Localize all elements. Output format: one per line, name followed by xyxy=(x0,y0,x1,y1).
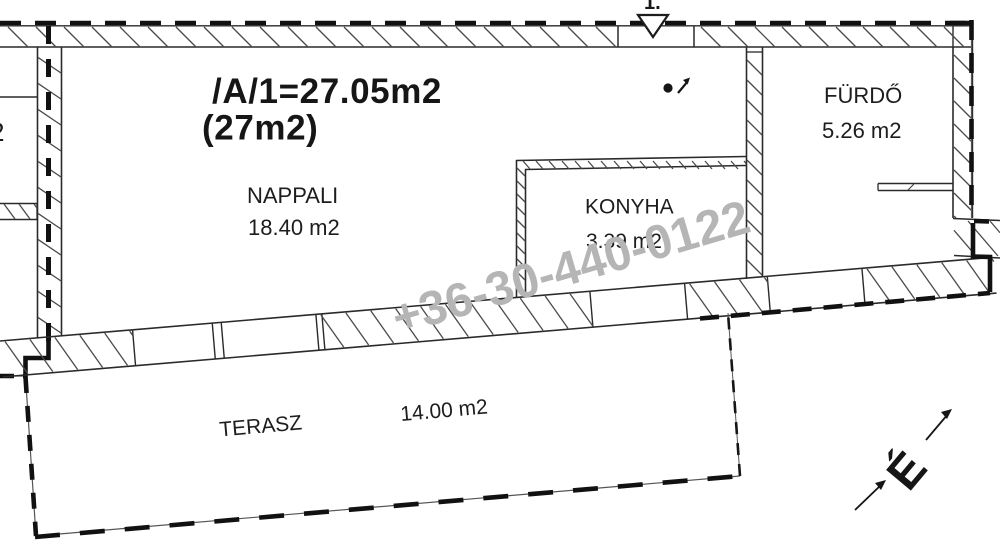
svg-text:NAPPALI: NAPPALI xyxy=(247,183,338,208)
svg-text:FÜRDŐ: FÜRDŐ xyxy=(824,83,902,108)
svg-text:/A/1=27.05m2: /A/1=27.05m2 xyxy=(212,72,442,111)
svg-text:18.40 m2: 18.40 m2 xyxy=(248,215,340,240)
svg-text:(27m2): (27m2) xyxy=(202,109,318,148)
svg-text:+36-30-440-0122: +36-30-440-0122 xyxy=(386,191,756,346)
svg-text:14.00 m2: 14.00 m2 xyxy=(399,395,488,426)
svg-text:É: É xyxy=(876,441,937,499)
svg-text:2: 2 xyxy=(0,117,4,147)
svg-text:TERASZ: TERASZ xyxy=(218,411,303,441)
svg-text:5.26 m2: 5.26 m2 xyxy=(822,118,902,143)
svg-text:1.: 1. xyxy=(644,0,661,14)
